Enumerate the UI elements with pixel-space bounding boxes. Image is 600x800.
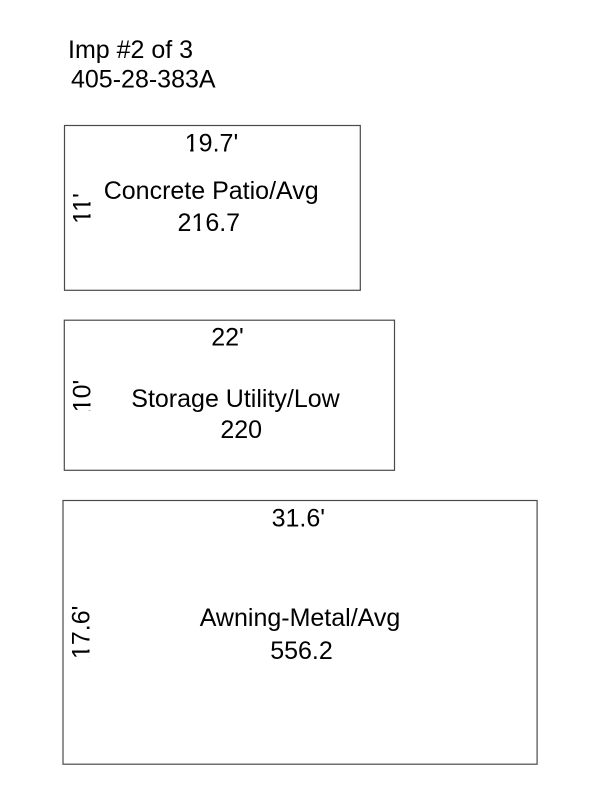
svg-text:220: 220 xyxy=(220,416,262,444)
svg-text:405-28-383A: 405-28-383A xyxy=(71,66,216,94)
svg-text:19.7': 19.7' xyxy=(185,130,238,158)
svg-text:22': 22' xyxy=(211,324,244,352)
svg-text:31.6': 31.6' xyxy=(272,504,325,532)
svg-text:Imp #2 of 3: Imp #2 of 3 xyxy=(68,36,193,64)
svg-text:556.2: 556.2 xyxy=(270,637,333,665)
svg-text:17.6': 17.6' xyxy=(68,606,96,659)
svg-text:Awning-Metal/Avg: Awning-Metal/Avg xyxy=(200,604,401,632)
svg-text:216.7: 216.7 xyxy=(178,209,241,237)
svg-text:Storage Utility/Low: Storage Utility/Low xyxy=(131,385,340,413)
svg-text:Concrete Patio/Avg: Concrete Patio/Avg xyxy=(104,177,319,205)
